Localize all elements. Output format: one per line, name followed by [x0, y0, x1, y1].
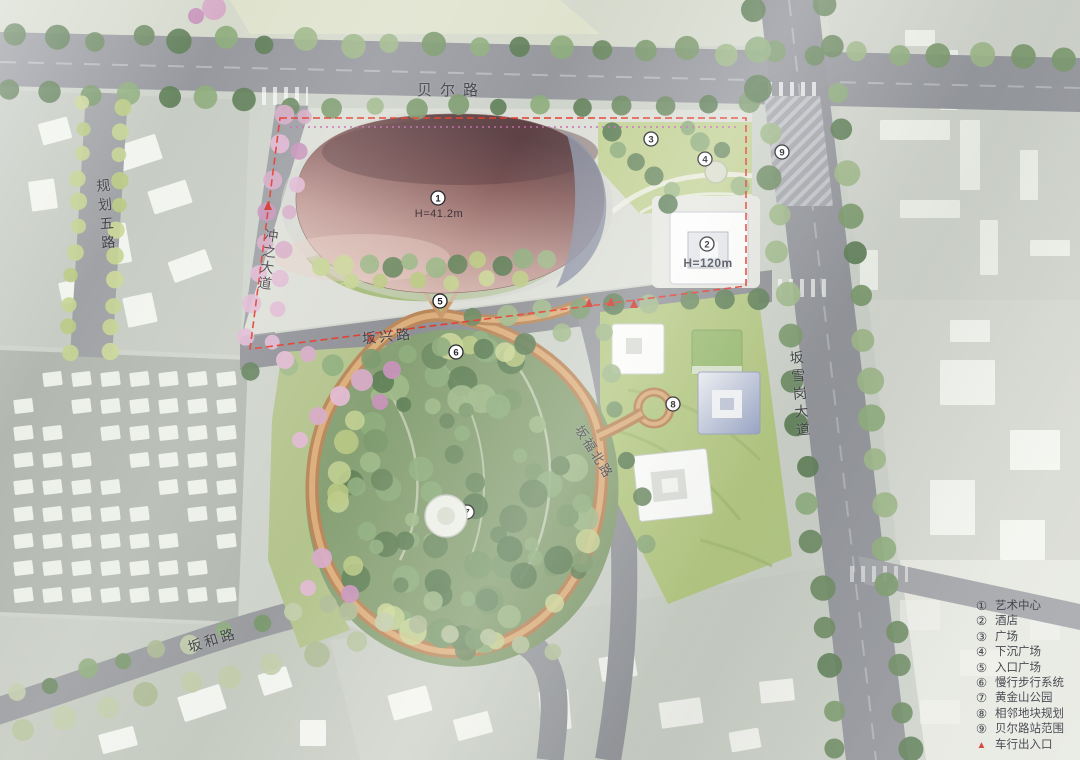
building-footprint	[187, 479, 208, 495]
tree-icon	[327, 482, 348, 503]
tree-icon	[282, 205, 296, 219]
tree-icon	[341, 34, 366, 59]
building-footprint	[905, 30, 935, 46]
tree-icon	[573, 494, 592, 513]
tree-icon	[194, 85, 218, 109]
marker-hotel: 2	[700, 237, 714, 251]
tree-icon	[1052, 48, 1076, 72]
tree-icon	[284, 603, 302, 621]
circled-5-icon: ⑤	[974, 662, 989, 675]
building-footprint	[187, 425, 208, 441]
tree-icon	[112, 123, 129, 140]
tree-icon	[344, 273, 360, 289]
tree-icon	[681, 121, 695, 135]
building-footprint	[1020, 150, 1038, 200]
tree-icon	[330, 386, 350, 406]
building-footprint	[129, 371, 150, 387]
tree-icon	[874, 572, 898, 596]
tree-icon	[102, 319, 118, 335]
tree-icon	[260, 653, 282, 675]
tree-icon	[553, 323, 572, 342]
tree-icon	[498, 605, 521, 628]
legend-label: 广场	[995, 631, 1018, 644]
road-label-beier: 贝尔路	[417, 79, 486, 100]
tree-icon	[528, 550, 543, 565]
building-footprint	[187, 371, 208, 387]
tree-icon	[490, 99, 507, 116]
tree-icon	[469, 251, 486, 268]
tree-icon	[361, 349, 381, 369]
building-footprint	[158, 479, 179, 495]
tree-icon	[371, 469, 393, 491]
building-footprint	[158, 398, 179, 414]
marker-sunken-plaza: 4	[698, 152, 712, 166]
tree-icon	[514, 333, 536, 355]
tree-icon	[111, 172, 128, 189]
tree-icon	[846, 41, 866, 61]
svg-text:8: 8	[670, 399, 675, 410]
tree-icon	[872, 492, 897, 517]
tree-icon	[644, 166, 663, 185]
tree-icon	[486, 394, 511, 419]
tree-icon	[425, 398, 441, 414]
tree-icon	[572, 551, 593, 572]
tree-icon	[422, 32, 446, 56]
vehicle-entrance-icon: ▲	[974, 739, 989, 752]
building-footprint	[187, 560, 208, 576]
tree-icon	[465, 473, 485, 493]
tree-icon	[606, 401, 622, 417]
tree-icon	[596, 324, 613, 341]
building-footprint	[129, 506, 150, 522]
tree-icon	[321, 98, 342, 119]
tree-icon	[779, 324, 803, 348]
tree-icon	[383, 361, 401, 379]
circled-4-icon: ④	[974, 646, 989, 659]
tree-icon	[61, 297, 76, 312]
tree-icon	[292, 432, 308, 448]
building-footprint	[1000, 520, 1045, 560]
circled-2-icon: ②	[974, 615, 989, 628]
building-footprint	[216, 398, 237, 414]
tree-icon	[345, 411, 365, 431]
building-footprint	[13, 560, 34, 576]
tree-icon	[715, 44, 738, 67]
building-footprint	[216, 587, 237, 603]
tree-icon	[398, 345, 416, 363]
tree-icon	[714, 142, 730, 158]
tree-icon	[765, 241, 788, 264]
tree-icon	[67, 244, 84, 261]
tree-icon	[322, 354, 344, 376]
tree-icon	[857, 368, 884, 395]
tree-icon	[858, 404, 885, 431]
tree-icon	[270, 134, 289, 153]
tree-icon	[215, 26, 238, 49]
svg-text:9: 9	[779, 147, 784, 158]
marker-adjacent-plot: 8	[666, 397, 680, 411]
tree-icon	[334, 255, 354, 275]
tree-icon	[75, 96, 89, 110]
tree-icon	[760, 123, 781, 144]
building-footprint	[42, 533, 63, 549]
building-footprint	[122, 292, 158, 328]
legend-item-golden-hill-park: ⑦ 黄金山公园	[974, 692, 1064, 705]
building-footprint	[187, 452, 208, 468]
building-footprint	[158, 425, 179, 441]
tree-icon	[493, 256, 513, 276]
building-footprint	[158, 587, 179, 603]
tree-icon	[45, 25, 70, 50]
building-footprint	[216, 479, 237, 495]
tree-icon	[460, 591, 475, 606]
building-footprint	[980, 220, 998, 275]
tree-icon	[799, 530, 823, 554]
tree-icon	[810, 575, 835, 600]
building-footprint	[71, 587, 92, 603]
building-footprint	[940, 360, 995, 405]
tree-icon	[181, 671, 202, 692]
tree-icon	[464, 551, 492, 579]
legend-label: 酒店	[995, 615, 1018, 628]
tree-icon	[112, 147, 127, 162]
building-footprint	[187, 506, 208, 522]
tree-icon	[241, 362, 259, 380]
building-footprint	[900, 200, 960, 218]
tree-icon	[797, 456, 819, 478]
circled-9-icon: ⑨	[974, 723, 989, 736]
tree-icon	[232, 88, 256, 112]
tree-icon	[396, 397, 411, 412]
marker-slow-walk-system: 6	[449, 345, 463, 359]
building-footprint	[13, 587, 34, 603]
building-footprint	[42, 371, 63, 387]
building-footprint	[216, 533, 237, 549]
tree-icon	[347, 477, 366, 496]
tree-icon	[639, 294, 658, 313]
tree-icon	[369, 540, 384, 555]
tree-icon	[351, 369, 373, 391]
tree-icon	[78, 658, 98, 678]
building-footprint	[28, 178, 58, 211]
tree-icon	[602, 122, 621, 141]
legend-label: 贝尔路站范围	[995, 723, 1064, 736]
building-footprint	[950, 320, 990, 342]
tree-icon	[432, 337, 451, 356]
legend-label: 黄金山公园	[995, 692, 1053, 705]
svg-text:6: 6	[453, 347, 458, 358]
tree-icon	[602, 364, 621, 383]
tree-icon	[379, 34, 398, 53]
tree-icon	[70, 193, 87, 210]
tree-icon	[529, 416, 546, 433]
tree-icon	[300, 580, 316, 596]
tree-icon	[476, 589, 499, 612]
tree-icon	[102, 343, 119, 360]
tree-icon	[42, 678, 58, 694]
tree-icon	[393, 577, 408, 592]
hotel-height-label: H=120m	[672, 256, 744, 270]
building-footprint	[129, 398, 150, 414]
building-footprint	[100, 398, 121, 414]
tree-icon	[52, 706, 76, 730]
tree-icon	[38, 81, 60, 103]
tree-icon	[658, 194, 677, 213]
tree-icon	[744, 75, 772, 103]
marker-entrance-plaza: 5	[433, 294, 447, 308]
building-footprint	[100, 533, 121, 549]
circled-8-icon: ⑧	[974, 708, 989, 721]
tree-icon	[592, 40, 612, 60]
tree-icon	[401, 253, 418, 270]
tree-icon	[300, 346, 316, 362]
building-footprint	[158, 452, 179, 468]
legend-item-slow-walk-system: ⑥ 慢行步行系统	[974, 677, 1064, 690]
building-footprint	[759, 678, 795, 703]
tree-icon	[69, 171, 85, 187]
tree-icon	[889, 45, 910, 66]
tree-icon	[334, 430, 359, 455]
tree-icon	[312, 548, 332, 568]
tree-icon	[886, 621, 908, 643]
tree-icon	[512, 271, 529, 288]
tree-icon	[166, 29, 191, 54]
legend-label: 慢行步行系统	[995, 677, 1064, 690]
tree-icon	[106, 271, 124, 289]
building-footprint	[71, 452, 92, 468]
legend-label: 车行出入口	[995, 739, 1053, 752]
tree-icon	[275, 105, 295, 125]
tree-icon	[426, 257, 447, 278]
tree-icon	[864, 448, 886, 470]
marker-art-center: 1	[431, 191, 445, 205]
building-footprint	[13, 452, 34, 468]
legend-item-adjacent-plot: ⑧ 相邻地块规划	[974, 708, 1064, 721]
tree-icon	[443, 275, 459, 291]
site-plan-map: 1 2 3 4 5 6 7 8 9	[0, 0, 1080, 760]
building-footprint	[100, 371, 121, 387]
tree-icon	[851, 285, 872, 306]
building-footprint	[100, 479, 121, 495]
building-footprint	[13, 425, 34, 441]
tree-icon	[824, 739, 844, 759]
marker-plaza: 3	[644, 132, 658, 146]
tree-icon	[795, 492, 817, 514]
tree-icon	[533, 299, 552, 318]
tree-icon	[656, 96, 676, 116]
circled-7-icon: ⑦	[974, 692, 989, 705]
tree-icon	[85, 32, 105, 52]
tree-icon	[360, 255, 379, 274]
tree-icon	[633, 487, 652, 506]
tree-icon	[8, 683, 26, 701]
tree-icon	[159, 86, 181, 108]
tree-icon	[834, 160, 860, 186]
building-footprint	[42, 479, 63, 495]
tree-icon	[831, 118, 853, 140]
tree-icon	[147, 640, 165, 658]
tree-icon	[550, 35, 574, 59]
tree-icon	[328, 461, 351, 484]
tree-icon	[821, 35, 844, 58]
tree-icon	[254, 615, 271, 632]
tree-icon	[544, 546, 573, 575]
park-pavilion-core	[437, 507, 455, 525]
building-footprint	[71, 506, 92, 522]
tree-icon	[77, 122, 91, 136]
svg-text:5: 5	[437, 296, 443, 307]
building-footprint	[187, 587, 208, 603]
tree-icon	[530, 95, 550, 115]
tree-icon	[4, 23, 26, 45]
building-footprint	[129, 452, 150, 468]
art-center-height-label: H=41.2m	[404, 208, 474, 220]
tree-icon	[537, 250, 556, 269]
tree-icon	[423, 591, 442, 610]
legend-label: 下沉广场	[995, 646, 1041, 659]
building-footprint	[100, 425, 121, 441]
building-footprint	[71, 560, 92, 576]
tree-icon	[576, 529, 600, 553]
building-footprint	[960, 120, 980, 190]
building-footprint	[1030, 240, 1070, 256]
building-footprint	[216, 452, 237, 468]
legend: ① 艺术中心 ② 酒店 ③ 广场 ④ 下沉广场 ⑤ 入口广场 ⑥ 慢行步行系统 …	[974, 600, 1064, 752]
tree-icon	[276, 351, 294, 369]
tree-icon	[339, 602, 358, 621]
tree-icon	[637, 535, 656, 554]
circled-1-icon: ①	[974, 600, 989, 613]
building-footprint	[158, 560, 179, 576]
tree-icon	[343, 556, 363, 576]
tree-icon	[62, 345, 78, 361]
tree-icon	[459, 403, 474, 418]
building-footprint	[13, 398, 34, 414]
building-footprint	[42, 425, 63, 441]
tree-icon	[509, 37, 529, 57]
building-footprint	[13, 506, 34, 522]
legend-label: 相邻地块规划	[995, 708, 1064, 721]
tree-icon	[71, 219, 86, 234]
tree-icon	[63, 268, 77, 282]
tree-icon	[409, 615, 427, 633]
legend-item-entrance-plaza: ⑤ 入口广场	[974, 662, 1064, 675]
tree-icon	[925, 43, 950, 68]
building-footprint	[100, 587, 121, 603]
tree-icon	[410, 272, 427, 289]
tree-icon	[309, 407, 327, 425]
tree-icon	[445, 445, 464, 464]
tree-icon	[297, 110, 311, 124]
svg-text:1: 1	[435, 193, 441, 204]
tree-icon	[409, 457, 434, 482]
building-footprint	[129, 560, 150, 576]
building-footprint	[100, 560, 121, 576]
marker-bell-road-station: 9	[775, 145, 789, 159]
tree-icon	[218, 665, 242, 689]
tree-icon	[105, 298, 121, 314]
tree-icon	[817, 653, 842, 678]
tree-icon	[757, 165, 782, 190]
building-footprint	[100, 506, 121, 522]
building-footprint	[930, 480, 975, 535]
tree-icon	[289, 177, 305, 193]
tree-icon	[255, 36, 274, 55]
building-footprint	[300, 720, 326, 746]
tree-icon	[828, 83, 848, 103]
svg-text:3: 3	[648, 134, 653, 145]
building-footprint	[71, 533, 92, 549]
legend-item-sunken-plaza: ④ 下沉广场	[974, 646, 1064, 659]
tree-icon	[312, 258, 330, 276]
svg-text:4: 4	[702, 154, 708, 165]
tree-icon	[133, 682, 158, 707]
tree-icon	[814, 617, 836, 639]
tree-icon	[551, 456, 570, 475]
tree-icon	[513, 248, 534, 269]
tree-icon	[892, 702, 913, 723]
tree-icon	[699, 95, 718, 114]
tree-icon	[373, 274, 388, 289]
tree-icon	[406, 98, 427, 119]
tree-icon	[114, 99, 131, 116]
tree-icon	[690, 132, 709, 151]
tree-icon	[748, 288, 770, 310]
circled-3-icon: ③	[974, 631, 989, 644]
tree-icon	[441, 625, 459, 643]
tree-icon	[510, 563, 536, 589]
building-footprint	[42, 560, 63, 576]
tree-icon	[396, 532, 415, 551]
tree-icon	[612, 96, 632, 116]
tree-icon	[769, 204, 790, 225]
building-footprint	[216, 506, 237, 522]
tree-icon	[610, 142, 626, 158]
tree-icon	[360, 452, 381, 473]
tree-icon	[499, 505, 527, 533]
tree-icon	[372, 394, 388, 410]
svg-text:2: 2	[704, 239, 709, 250]
building-footprint	[129, 425, 150, 441]
tree-icon	[851, 329, 874, 352]
tree-icon	[405, 513, 419, 527]
tree-icon	[341, 585, 359, 603]
tree-icon	[242, 294, 261, 313]
tree-icon	[545, 594, 564, 613]
building-footprint	[216, 371, 237, 387]
tree-icon	[75, 146, 90, 161]
legend-item-vehicle-entrance: ▲ 车行出入口	[974, 739, 1064, 752]
building-footprint	[1010, 430, 1060, 470]
tree-icon	[524, 537, 538, 551]
building-footprint	[42, 452, 63, 468]
tree-icon	[545, 644, 562, 661]
tree-icon	[188, 8, 204, 24]
building-footprint	[42, 587, 63, 603]
tree-icon	[838, 204, 863, 229]
legend-item-hotel: ② 酒店	[974, 615, 1064, 628]
building-footprint	[129, 533, 150, 549]
tree-icon	[745, 37, 771, 63]
tree-icon	[480, 629, 497, 646]
legend-item-bell-road-station: ⑨ 贝尔路站范围	[974, 723, 1064, 736]
tree-icon	[715, 289, 735, 309]
building-footprint	[920, 700, 960, 724]
building-footprint	[71, 371, 92, 387]
legend-label: 艺术中心	[995, 600, 1041, 613]
building-footprint	[187, 398, 208, 414]
tree-icon	[618, 452, 635, 469]
